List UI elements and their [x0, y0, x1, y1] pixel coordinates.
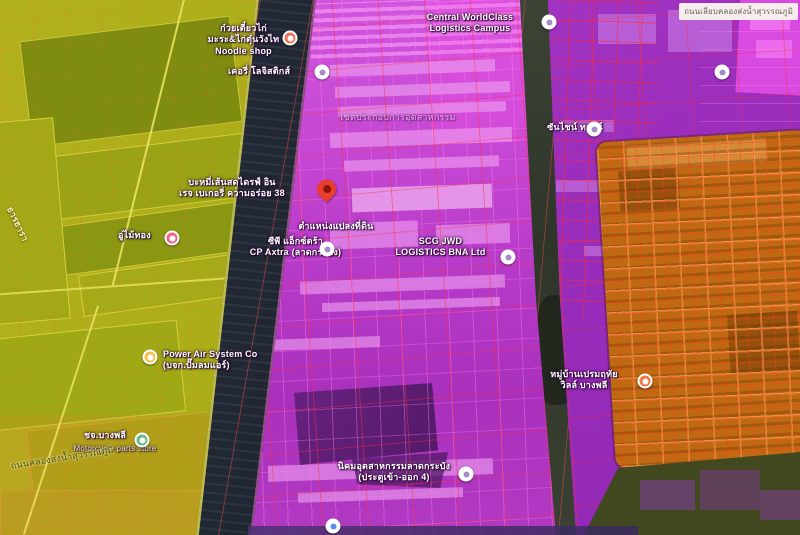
- map-label-land-plot-caption: ตำแหน่งแปลงที่ดิน: [286, 221, 386, 232]
- destination-marker-icon: [313, 176, 340, 203]
- map-label-central-logistics[interactable]: Central WorldClassLogistics Campus: [415, 12, 525, 35]
- map-label-line: บะหมี่เส้นสดไดรฟ์ อิน: [158, 177, 306, 188]
- map-label-line: วิลล์ บางพลี: [534, 380, 634, 391]
- map-label-line: ชจ.บางพลี: [84, 430, 136, 441]
- map-label-line: ตำแหน่งแปลงที่ดิน: [286, 221, 386, 232]
- poi-pin-central-logistics[interactable]: [542, 15, 557, 30]
- map-label-line: LOGISTICS BNA Ltd: [388, 247, 493, 258]
- poi-pin-bangphli-store[interactable]: [135, 433, 150, 448]
- map-label-line: ธารธารา: [4, 205, 30, 243]
- poi-pin-scg-jwd[interactable]: [501, 250, 516, 265]
- map-label-line: เคอรี่ โลจิสติกส์: [228, 66, 316, 77]
- map-label-line: SCG JWD: [388, 236, 493, 247]
- map-label-industrial-estate-gate[interactable]: นิคมอุตสาหกรรมลาดกระบัง(ประตูเข้า-ออก 4): [330, 461, 458, 484]
- business-icon: [147, 354, 153, 360]
- poi-layer: Central WorldClassLogistics Campusก๋วยเต…: [0, 0, 800, 535]
- map-label-bangphli-store[interactable]: ชจ.บางพลี: [84, 430, 136, 441]
- map-label-line: อู่ไม้ทอง: [118, 230, 170, 241]
- map-label-line: หมู่บ้านเปรมฤทัย: [534, 369, 634, 380]
- road-name-box: ถนนเลียบคลองส่งน้ำสุวรรณภูมิ: [679, 3, 798, 20]
- place-icon: [719, 69, 725, 75]
- poi-pin-sunshine-town[interactable]: [587, 122, 602, 137]
- poi-pin-school-south[interactable]: [326, 519, 341, 534]
- map-label-kerry-logistics[interactable]: เคอรี่ โลจิสติกส์: [228, 66, 316, 77]
- poi-pin-industrial-gate[interactable]: [459, 467, 474, 482]
- map-label-bakery-drive-in[interactable]: บะหมี่เส้นสดไดรฟ์ อินเรจ เบเกอรี่ ความอร…: [158, 177, 306, 200]
- store-icon: [169, 235, 175, 241]
- place-icon: [319, 69, 325, 75]
- poi-pin-warehouse-ne[interactable]: [715, 65, 730, 80]
- place-icon: [463, 471, 469, 477]
- poi-pin-village[interactable]: [638, 374, 653, 389]
- restaurant-icon: [287, 35, 293, 41]
- school-icon: [330, 523, 336, 529]
- place-icon: [591, 126, 597, 132]
- map-label-line: เขตประกอบการอุตสาหกรรม: [318, 112, 478, 123]
- map-label-line: เรจ เบเกอรี่ ความอร่อย 38: [158, 188, 306, 199]
- destination-pin[interactable]: [316, 179, 338, 205]
- map-label-noodle-restaurant[interactable]: ก๋วยเตี๋ยวไก่มะระ&ไก่ตุ๋นวังไทNoodle sho…: [196, 23, 291, 57]
- map-label-industrial-area: เขตประกอบการอุตสาหกรรม: [318, 112, 478, 123]
- map-label-line: Central WorldClass: [415, 12, 525, 23]
- poi-pin-noodle-restaurant[interactable]: [283, 31, 298, 46]
- home-icon: [642, 378, 648, 384]
- map-label-line: นิคมอุตสาหกรรมลาดกระบัง: [330, 461, 458, 472]
- poi-pin-power-air[interactable]: [143, 350, 158, 365]
- map-label-garage[interactable]: อู่ไม้ทอง: [118, 230, 170, 241]
- map-label-line: (บจก.ปั๊มลมแอร์): [163, 360, 278, 371]
- map-canvas[interactable]: Central WorldClassLogistics Campusก๋วยเต…: [0, 0, 800, 535]
- map-label-road-thara-name: ธารธารา: [4, 205, 30, 243]
- map-label-line: Logistics Campus: [415, 23, 525, 34]
- place-icon: [324, 246, 330, 252]
- shopping-icon: [139, 437, 145, 443]
- place-icon: [505, 254, 511, 260]
- map-label-village-premruetai[interactable]: หมู่บ้านเปรมฤทัยวิลล์ บางพลี: [534, 369, 634, 392]
- map-label-line: ก๋วยเตี๋ยวไก่: [196, 23, 291, 34]
- map-label-line: Noodle shop: [196, 46, 291, 57]
- map-label-scg-jwd[interactable]: SCG JWDLOGISTICS BNA Ltd: [388, 236, 493, 259]
- poi-pin-kerry-logistics[interactable]: [315, 65, 330, 80]
- poi-pin-garage[interactable]: [165, 231, 180, 246]
- map-label-line: (ประตูเข้า-ออก 4): [330, 472, 458, 483]
- poi-pin-cp-axtra[interactable]: [320, 242, 335, 257]
- map-label-line: Power Air System Co: [163, 349, 278, 360]
- map-label-line: มะระ&ไก่ตุ๋นวังไท: [196, 34, 291, 45]
- place-icon: [546, 19, 552, 25]
- map-label-power-air[interactable]: Power Air System Co(บจก.ปั๊มลมแอร์): [163, 349, 278, 372]
